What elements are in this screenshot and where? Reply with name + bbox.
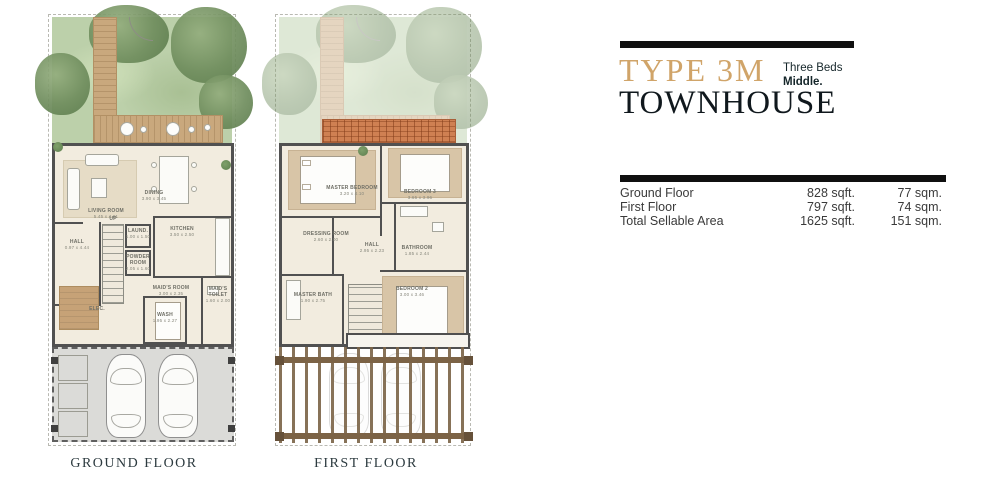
plant-icon xyxy=(221,160,231,170)
car-top-view xyxy=(158,354,198,438)
room-label-bedroom3: BEDROOM 33.65 x 3.96 xyxy=(390,189,450,200)
kitchen-counter xyxy=(215,218,230,276)
brochure-page: LIVING ROOM5.45 x 4.01 DINING3.90 x 3.45… xyxy=(0,0,1000,500)
ground-floor-caption: GROUND FLOOR xyxy=(34,456,234,472)
unit-type-title: TYPE 3M xyxy=(619,52,765,89)
vanity xyxy=(400,206,428,217)
pillow xyxy=(302,160,311,166)
area-row-sqft: 828 sqft. xyxy=(730,186,855,200)
toilet-fixture xyxy=(432,222,444,232)
interior-wall xyxy=(342,276,344,344)
area-row-sqft: 797 sqft. xyxy=(730,200,855,214)
interior-wall xyxy=(99,222,101,306)
post xyxy=(51,357,58,364)
room-label-hall: HALL0.97 x 4.44 xyxy=(57,239,97,250)
room-label-master-bedroom: MASTER BEDROOM3.20 x 4.10 xyxy=(322,185,382,196)
pergola-over-parking xyxy=(279,347,469,443)
plant-icon xyxy=(53,142,63,152)
car-top-view xyxy=(106,354,146,438)
beds-count: Three Beds xyxy=(783,62,842,74)
area-row-sqm: 77 sqm. xyxy=(850,186,942,200)
post xyxy=(228,425,235,432)
pergola-beam xyxy=(277,357,471,363)
product-title: TOWNHOUSE xyxy=(619,85,836,122)
room-label-bedroom2: BEDROOM 23.00 x 3.46 xyxy=(382,286,442,297)
dining-chair xyxy=(151,162,157,168)
bed xyxy=(400,154,450,192)
first-floor-plan: MASTER BEDROOM3.20 x 4.10 BEDROOM 33.65 … xyxy=(275,14,471,446)
room-label-dressing: DRESSING ROOM2.60 x 2.00 xyxy=(296,231,356,242)
tree-icon xyxy=(406,7,482,83)
post xyxy=(51,425,58,432)
interior-wall xyxy=(394,204,396,270)
plant-icon xyxy=(358,146,368,156)
room-label-elec: ELEC. xyxy=(77,306,117,312)
area-row-sqft: 1625 sqft. xyxy=(730,214,855,228)
wood-deck xyxy=(93,115,223,143)
tree-icon xyxy=(171,7,247,83)
tree-icon xyxy=(262,53,317,115)
coffee-table xyxy=(91,178,107,198)
patio-table xyxy=(166,122,180,136)
room-label-maids-toilet: MAID'S TOILET1.60 x 2.00 xyxy=(203,286,233,303)
pergola-beam xyxy=(277,433,471,439)
patio-chair xyxy=(204,124,211,131)
storage-rect xyxy=(58,355,88,381)
interior-wall xyxy=(380,270,466,272)
interior-wall xyxy=(380,202,466,204)
interior-wall xyxy=(55,222,83,224)
parking-area xyxy=(52,347,234,442)
sofa xyxy=(85,154,119,166)
dining-chair xyxy=(191,162,197,168)
room-label-wash: WASH1.95 x 2.27 xyxy=(145,312,185,323)
area-table-bar xyxy=(620,175,946,182)
stairs-up-label: UP xyxy=(103,216,123,222)
patio-table xyxy=(120,122,134,136)
interior-wall xyxy=(153,276,231,278)
dining-chair xyxy=(191,186,197,192)
tiled-canopy-roof xyxy=(322,119,456,143)
room-label-hall: HALL2.95 x 2.23 xyxy=(352,242,392,253)
post xyxy=(228,357,235,364)
house-outline: LIVING ROOM5.45 x 4.01 DINING3.90 x 3.45… xyxy=(52,143,234,347)
first-floor-caption: FIRST FLOOR xyxy=(266,456,466,472)
ground-floor-plan: LIVING ROOM5.45 x 4.01 DINING3.90 x 3.45… xyxy=(48,14,236,446)
storage-rect xyxy=(58,383,88,409)
interior-wall xyxy=(332,218,334,276)
area-row-sqm: 74 sqm. xyxy=(850,200,942,214)
room-label-laundry: LAUND.1.00 x 1.50 xyxy=(118,228,158,239)
room-label-maids-room: MAID'S ROOM3.00 x 2.35 xyxy=(141,285,201,296)
room-label-bathroom: BATHROOM1.85 x 2.44 xyxy=(387,245,447,256)
patio-chair xyxy=(140,126,147,133)
sofa xyxy=(67,168,80,210)
title-top-bar xyxy=(620,41,854,48)
room-label-dining: DINING3.90 x 3.45 xyxy=(124,190,184,201)
pergola-post xyxy=(275,356,284,365)
pergola-post xyxy=(464,432,473,441)
room-label-master-bath: MASTER BATH1.90 x 2.75 xyxy=(291,292,335,303)
room-label-powder: POWDER ROOM2.05 x 1.60 xyxy=(118,254,158,271)
pergola-post xyxy=(464,356,473,365)
pergola-post xyxy=(275,432,284,441)
patio-chair xyxy=(188,126,195,133)
house-outline: MASTER BEDROOM3.20 x 4.10 BEDROOM 33.65 … xyxy=(279,143,469,347)
deck-walkway xyxy=(93,17,117,129)
storage-rect xyxy=(58,411,88,437)
interior-wall xyxy=(282,274,344,276)
area-row-sqm: 151 sqm. xyxy=(850,214,942,228)
room-label-kitchen: KITCHEN3.50 x 2.50 xyxy=(152,226,212,237)
pillow xyxy=(302,184,311,190)
deck-walkway xyxy=(320,17,344,129)
tree-icon xyxy=(35,53,90,115)
